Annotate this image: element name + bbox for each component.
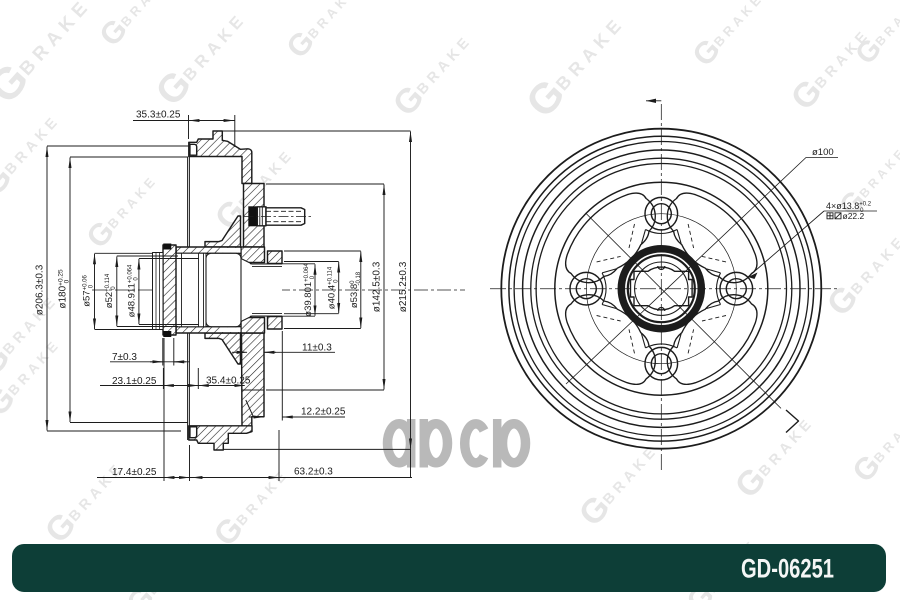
svg-text:17.4±0.25: 17.4±0.25 [112,467,157,478]
svg-text:23.1±0.25: 23.1±0.25 [112,376,157,387]
svg-text:12.2±0.25: 12.2±0.25 [301,407,346,418]
svg-text:63.2±0.3: 63.2±0.3 [294,467,333,478]
svg-text:GD-06251: GD-06251 [741,554,834,584]
svg-text:11±0.3: 11±0.3 [302,343,332,354]
svg-text:ø100: ø100 [812,147,834,158]
svg-text:7±0.3: 7±0.3 [112,352,137,363]
svg-text:ø142.5±0.3: ø142.5±0.3 [372,261,383,312]
svg-text:ø22.2: ø22.2 [843,211,865,221]
svg-text:ø215.2±0.3: ø215.2±0.3 [398,261,409,312]
svg-text:35.3±0.25: 35.3±0.25 [136,110,181,121]
svg-text:35.4±0.25: 35.4±0.25 [206,375,251,386]
svg-text:ø206.3±0.3: ø206.3±0.3 [35,264,46,315]
